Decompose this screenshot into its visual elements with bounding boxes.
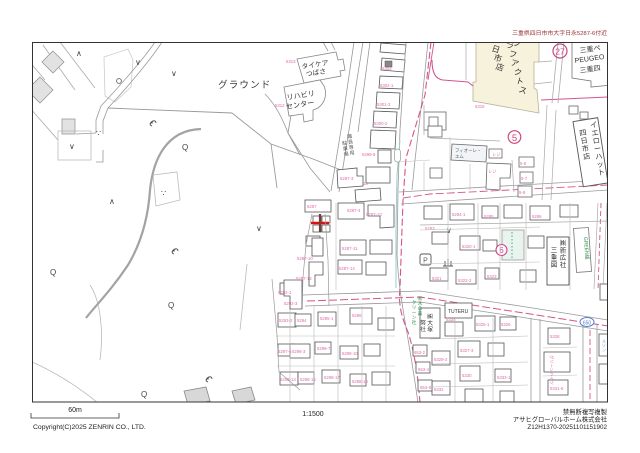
svg-text:5298-7: 5298-7: [317, 346, 331, 351]
svg-text:5296: 5296: [352, 313, 362, 318]
svg-text:5287-13: 5287-13: [366, 212, 382, 217]
svg-text:レジ: レジ: [492, 152, 501, 157]
svg-text:グラウンド: グラウンド: [218, 79, 272, 91]
svg-text:5298-3: 5298-3: [292, 349, 306, 354]
svg-text:三重図: 三重図: [551, 246, 558, 268]
svg-text:5295-1: 5295-1: [320, 316, 334, 321]
svg-text:禁無断複写複製: 禁無断複写複製: [563, 407, 608, 416]
svg-text:5325-1: 5325-1: [476, 322, 490, 327]
svg-text:5326: 5326: [501, 322, 511, 327]
svg-text:5324: 5324: [446, 317, 456, 322]
svg-text:∨: ∨: [171, 69, 177, 78]
svg-text:5287-10: 5287-10: [297, 256, 313, 261]
svg-text:フィオーレ・: フィオーレ・: [455, 148, 481, 153]
svg-text:650: 650: [583, 321, 592, 327]
svg-text:Copyright(C)2025 ZENRIN CO., L: Copyright(C)2025 ZENRIN CO., LTD.: [33, 424, 146, 431]
svg-text:㈱大塚: ㈱大塚: [427, 313, 433, 334]
svg-text:5287-11: 5287-11: [342, 246, 358, 251]
svg-text:5313: 5313: [286, 59, 296, 64]
svg-text:5320-1: 5320-1: [462, 244, 476, 249]
svg-text:エム: エム: [455, 154, 464, 159]
svg-text:5332: 5332: [434, 387, 444, 392]
svg-text:60m: 60m: [68, 407, 82, 414]
svg-text:5293-2: 5293-2: [279, 318, 293, 323]
svg-text:アサヒグローバルホーム株式会社: アサヒグローバルホーム株式会社: [513, 415, 608, 424]
svg-text:5329-2: 5329-2: [434, 357, 448, 362]
svg-text:P: P: [423, 258, 428, 265]
svg-text:クリーン社: クリーン社: [412, 300, 417, 326]
svg-text:努社: 努社: [420, 319, 426, 334]
svg-text:三重県四日市市大字日永5287-6付近: 三重県四日市市大字日永5287-6付近: [512, 29, 607, 37]
svg-text:5-8: 5-8: [519, 190, 526, 195]
svg-text:Q: Q: [50, 268, 56, 277]
svg-text:653-2: 653-2: [414, 350, 426, 355]
svg-text:グリーンハイツ: グリーンハイツ: [548, 355, 555, 385]
svg-text:653-6: 653-6: [420, 385, 432, 390]
svg-text:5286: 5286: [532, 214, 542, 219]
svg-text:5-6: 5-6: [520, 161, 527, 166]
svg-text:5287-3: 5287-3: [340, 176, 354, 181]
svg-text:5303: 5303: [382, 66, 392, 71]
svg-text:5331-5: 5331-5: [550, 386, 564, 391]
svg-text:5327-3: 5327-3: [460, 348, 474, 353]
svg-text:5292-1: 5292-1: [278, 290, 292, 295]
svg-text:Q: Q: [168, 301, 174, 310]
svg-text:Q: Q: [182, 143, 188, 152]
svg-text:5328: 5328: [550, 334, 560, 339]
svg-text:5298-10: 5298-10: [342, 351, 358, 356]
svg-text:5299-6: 5299-6: [362, 152, 376, 157]
svg-text:メゾン: メゾン: [602, 339, 606, 353]
svg-text:5285: 5285: [484, 214, 494, 219]
svg-text:∨: ∨: [446, 226, 452, 235]
svg-text:5321: 5321: [432, 276, 442, 281]
svg-text:5302-1: 5302-1: [380, 83, 394, 88]
svg-text:∵: ∵: [161, 189, 166, 198]
svg-text:5283: 5283: [425, 226, 435, 231]
svg-text:TUTERU: TUTERU: [448, 309, 469, 315]
svg-text:㈲水の森: ㈲水の森: [418, 295, 423, 317]
svg-text:653-4: 653-4: [418, 367, 430, 372]
svg-text:5298-19: 5298-19: [352, 379, 368, 384]
svg-text:5287-12: 5287-12: [296, 276, 312, 281]
svg-text:5322-2: 5322-2: [458, 278, 472, 283]
svg-text:5316: 5316: [475, 104, 485, 109]
svg-text:∨: ∨: [135, 58, 141, 67]
svg-text:5287-14: 5287-14: [339, 266, 355, 271]
svg-text:Z12H1370-20251101151902: Z12H1370-20251101151902: [527, 424, 607, 431]
svg-text:1:1500: 1:1500: [302, 411, 324, 418]
svg-text:5284-1: 5284-1: [452, 212, 466, 217]
svg-text:5292-3: 5292-3: [284, 301, 298, 306]
svg-text:∨: ∨: [69, 142, 75, 151]
svg-text:5301-2: 5301-2: [377, 102, 391, 107]
svg-text:5287: 5287: [307, 204, 317, 209]
svg-text:5330: 5330: [462, 373, 472, 378]
svg-text:5294: 5294: [297, 318, 307, 323]
svg-text:5-7: 5-7: [521, 176, 528, 181]
svg-text:∧: ∧: [76, 49, 82, 58]
svg-text:∵: ∵: [96, 129, 101, 138]
svg-text:∨: ∨: [256, 224, 262, 233]
svg-text:∧: ∧: [109, 197, 115, 206]
svg-text:5312: 5312: [275, 103, 285, 108]
svg-text:Q: Q: [141, 390, 147, 399]
svg-text:レジ: レジ: [488, 169, 497, 174]
svg-text:5333-1: 5333-1: [497, 375, 511, 380]
svg-text:27: 27: [555, 47, 565, 57]
svg-text:5323: 5323: [487, 274, 497, 279]
svg-text:5300-2: 5300-2: [374, 121, 388, 126]
svg-text:5: 5: [512, 133, 517, 144]
svg-text:5287-4: 5287-4: [347, 208, 361, 213]
svg-text:㈱新広社: ㈱新広社: [560, 238, 567, 269]
